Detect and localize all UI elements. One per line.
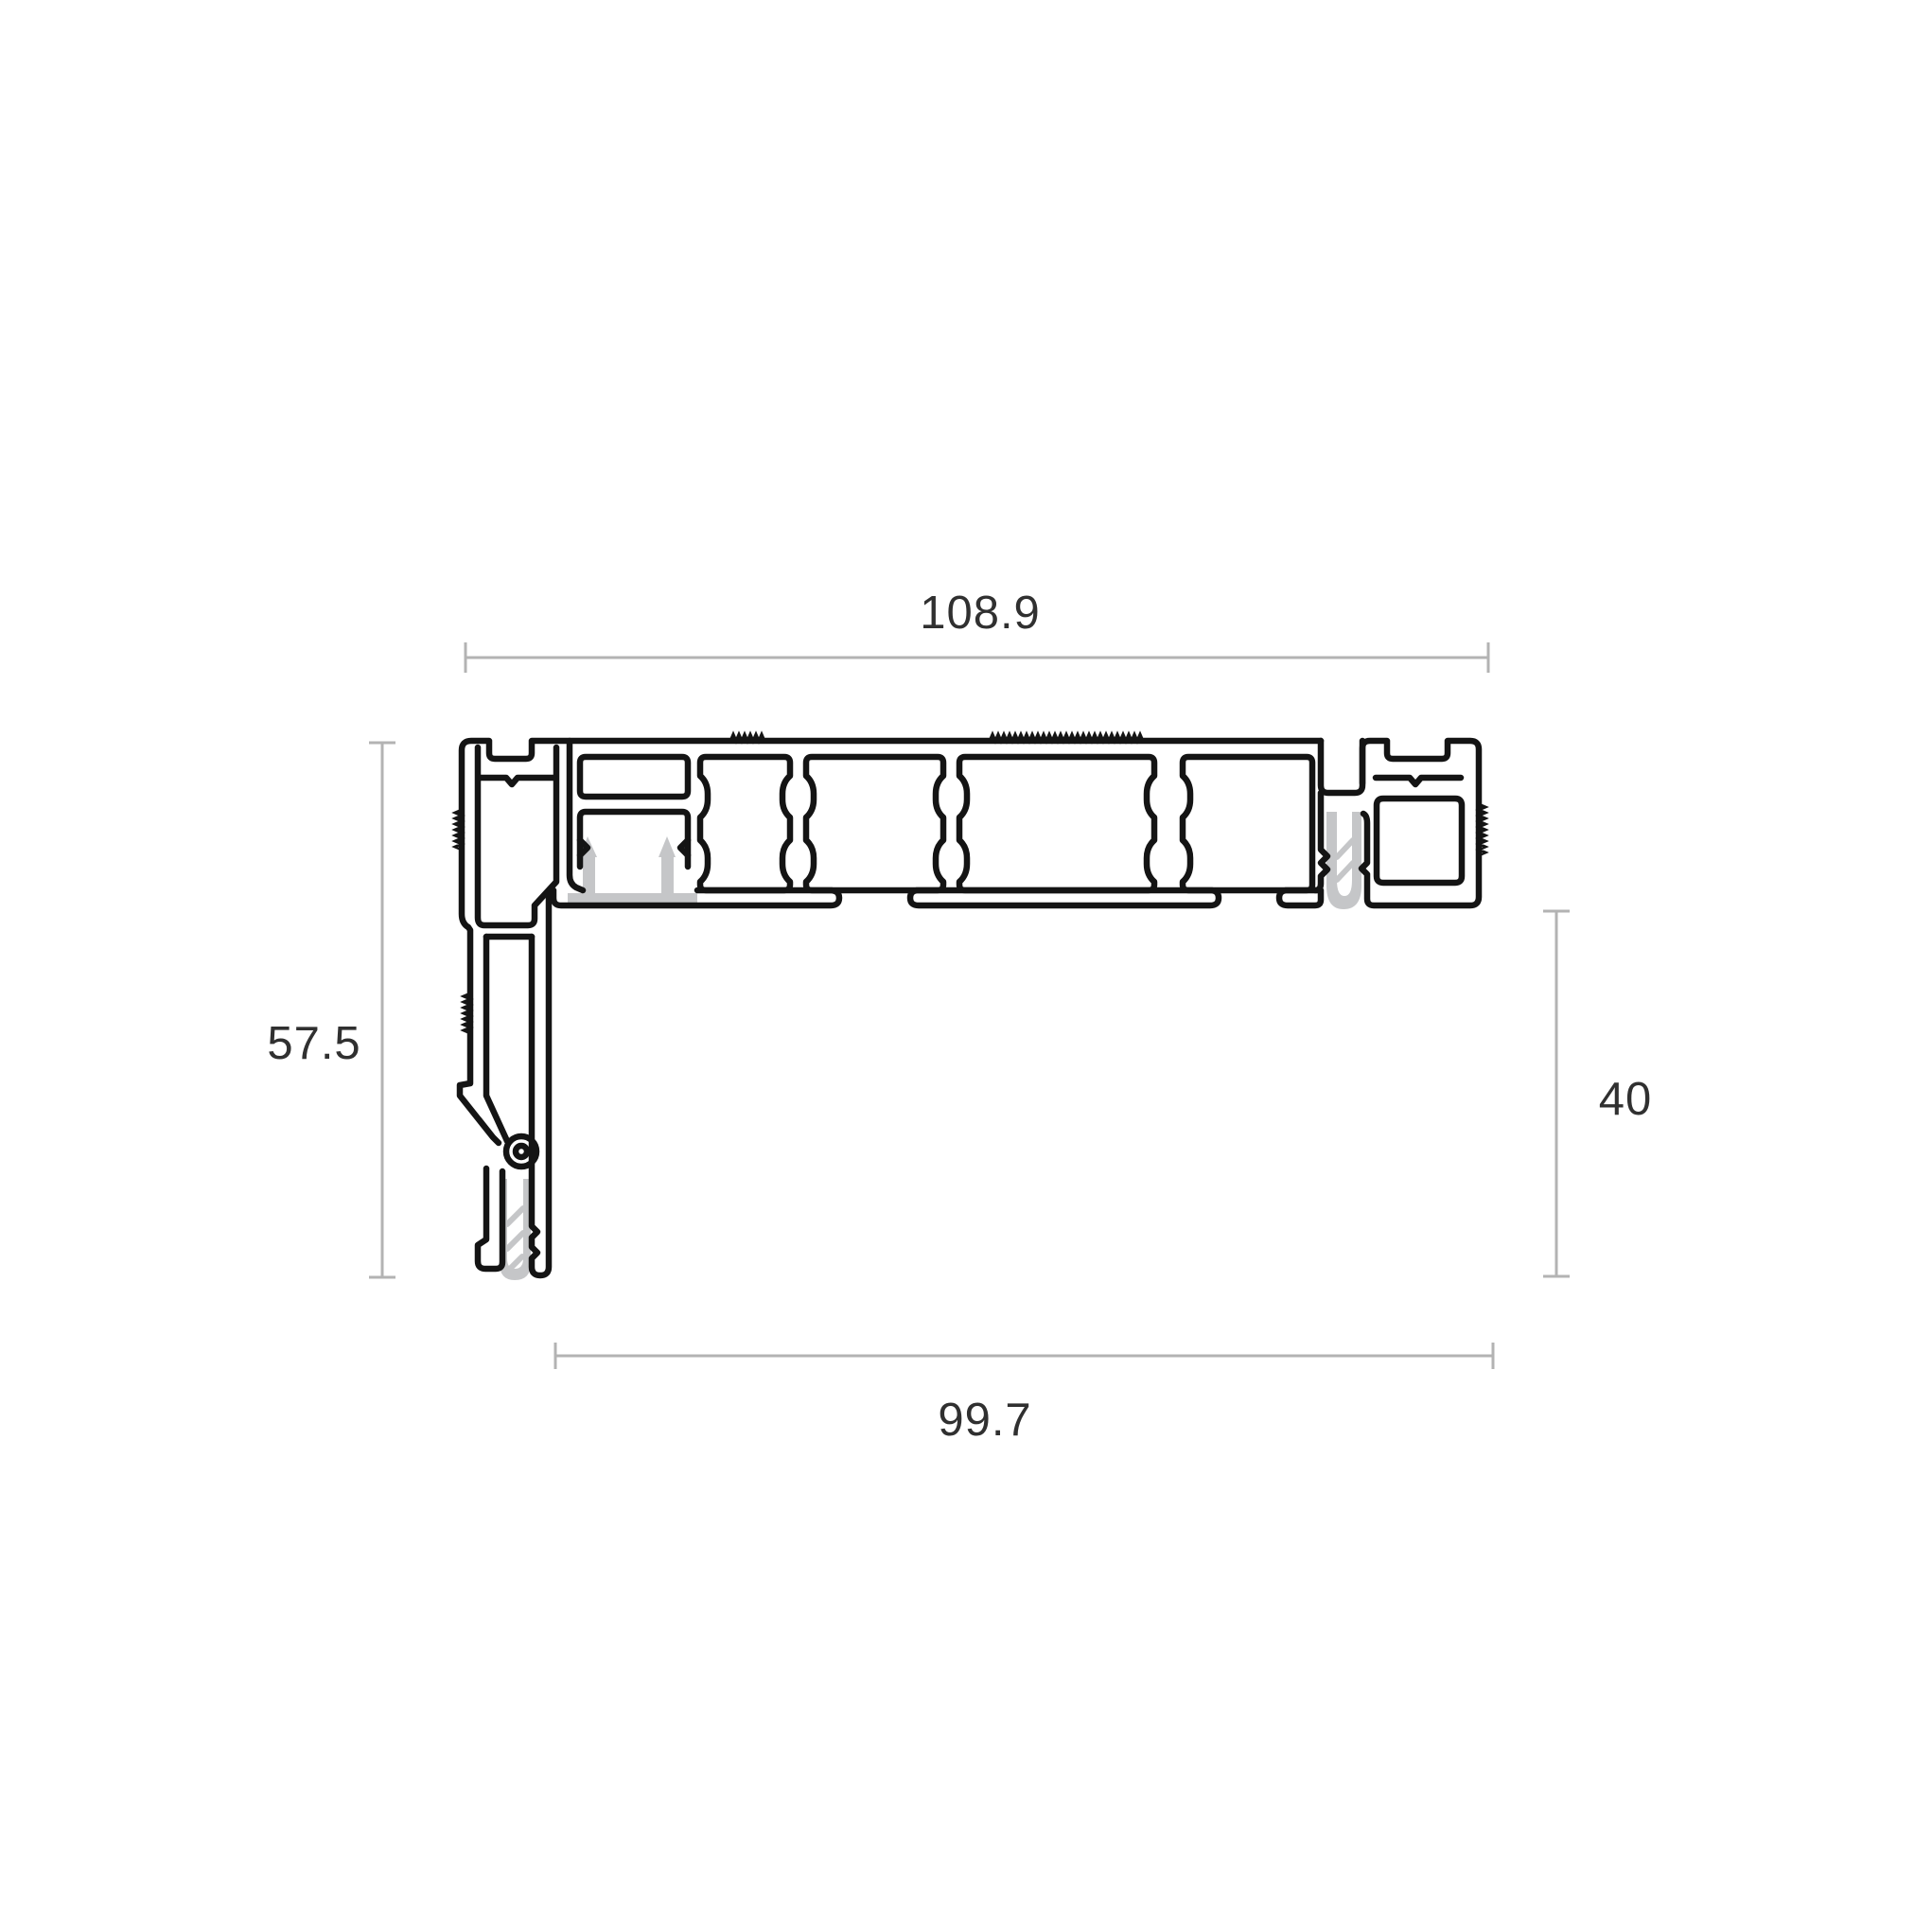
gasket-core-group xyxy=(507,812,1352,1269)
chamber-b xyxy=(700,757,790,890)
left-groove-floor xyxy=(480,778,554,784)
dimension-line-right xyxy=(1543,911,1570,1276)
chamber-a xyxy=(580,757,688,797)
dimension-line-left xyxy=(369,743,395,1277)
track-slot-outline xyxy=(1321,741,1362,793)
chamber-e xyxy=(1183,757,1312,890)
dimension-line-top xyxy=(465,642,1488,673)
chamber-d xyxy=(959,757,1154,890)
clip-groove-floor xyxy=(1376,778,1461,784)
drip-bulge-inner xyxy=(516,1146,527,1157)
dimension-label-bottom: 99.7 xyxy=(938,1395,1031,1446)
profile-line-group xyxy=(460,741,1479,1275)
technical-drawing-canvas: 108.9 57.5 40 99.7 xyxy=(0,0,1932,1932)
dimension-label-right: 40 xyxy=(1599,1074,1653,1125)
clip-track-chamber xyxy=(1377,799,1462,883)
glazing-gasket-right-arm xyxy=(661,853,674,895)
leg-channel-left-wall xyxy=(478,1168,502,1269)
leg-right-wall xyxy=(532,890,549,1275)
chamber-c xyxy=(806,757,943,890)
bottom-wall-segment-2 xyxy=(910,890,1219,905)
leg-inner-face-path xyxy=(486,937,507,1141)
knurl-top-short xyxy=(730,734,764,741)
glazing-gasket-right-tip xyxy=(659,836,676,857)
gasket-group xyxy=(500,812,1361,1280)
dimension-label-left: 57.5 xyxy=(267,1018,360,1069)
left-box-interior xyxy=(478,747,556,925)
dimension-label-top: 108.9 xyxy=(920,588,1041,639)
right-pocket-wall xyxy=(1315,793,1327,890)
dimension-line-bottom xyxy=(555,1343,1493,1369)
dimension-label-group: 108.9 57.5 40 99.7 xyxy=(267,588,1652,1446)
